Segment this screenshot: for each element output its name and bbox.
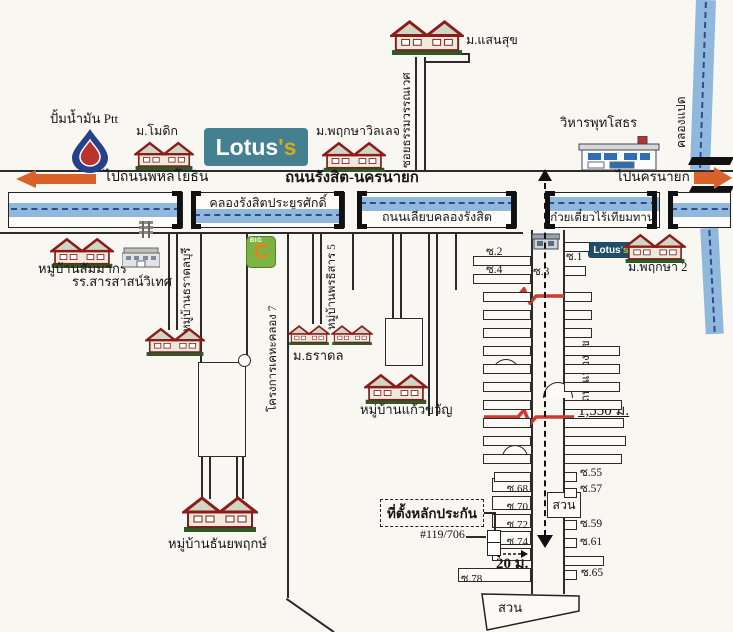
soi-65-label: ซ.65 [581, 567, 603, 580]
arrow-right-body [694, 172, 716, 184]
canal-water [9, 203, 182, 217]
soi-stub [483, 454, 531, 464]
soi-70-label: ซ.70 [505, 501, 530, 513]
soi-stub [564, 382, 620, 392]
bridge-bracket-icon [545, 191, 555, 229]
soi-68-label: ซ.68 [505, 483, 530, 495]
soi-stub [483, 328, 531, 338]
park-label: สวน [552, 495, 575, 515]
khlong8-label: คลองแปด [672, 96, 691, 148]
collateral-label: ที่ตั้งหลักประกัน [387, 502, 477, 524]
road-line [0, 232, 523, 234]
soi-stub [473, 256, 531, 266]
loop-road-outline [198, 362, 246, 457]
noodle-shop-icon [532, 230, 560, 250]
soi-stub [564, 310, 592, 320]
saensuk-house-icon [390, 18, 464, 57]
callout-line [466, 536, 486, 538]
road-line [400, 232, 402, 318]
canal-box: ถนนเลียบคลองรังสิต [357, 192, 517, 228]
width-20m-label: 20 ม. [496, 556, 528, 573]
lotus-word: Lotus [216, 134, 279, 161]
kaewkhwan-label: หมู่บ้านแก้วขวัญ [360, 403, 452, 418]
soi-59-label: ซ.59 [580, 518, 602, 531]
bridge-bracket-icon [172, 191, 182, 229]
road-line [242, 457, 244, 499]
soi-stub [564, 538, 577, 548]
bridge-bracket-icon [647, 191, 657, 229]
taradonburi-house-icon [145, 326, 205, 358]
canal-water [192, 209, 344, 223]
thanyapruek-label: หมู่บ้านธันยพฤกษ์ [168, 537, 267, 552]
soi-70-stub: ซ.70 [492, 496, 531, 510]
soi-stub [483, 292, 531, 302]
soi-stub [564, 364, 620, 374]
liap-khlong-road-label: ถนนเลียบคลองรังสิต [358, 207, 516, 227]
kaewkhwan-house-icon [364, 372, 428, 406]
arrow-left-icon [16, 170, 36, 188]
soi-72-stub: ซ.72 [492, 514, 531, 528]
taradon-house-icon [288, 324, 330, 346]
road-line [209, 457, 211, 499]
soi-1-label: ซ.1 [566, 251, 582, 264]
arrow-right-icon [714, 167, 732, 189]
lotus-apostrophe-s: 's [278, 134, 296, 161]
house-number-label: #119/706 [420, 528, 465, 542]
collateral-box: ที่ตั้งหลักประกัน [380, 499, 484, 527]
road-line [392, 232, 394, 318]
soi-stub [564, 454, 622, 464]
wihan-label: วิหารพุทโสธร [560, 116, 637, 131]
canal-box: ก๋วยเตี๋ยวไร้เทียมทาน [545, 192, 660, 228]
ptt-station-label: ปั้มน้ำมัน Ptt [50, 112, 118, 127]
pruksa2-label: ม.พฤกษา 2 [628, 260, 687, 274]
canal-box: คลองรังสิตประยูรศักดิ์ [191, 192, 345, 228]
soi-3-label: ซ.3 [533, 266, 549, 279]
soi-stub [494, 472, 531, 482]
soi-stub [564, 472, 577, 482]
keha-khlong7-label: โครงการเคหะคลอง 7 [264, 305, 282, 412]
soi-stub [564, 400, 622, 410]
phonthisan-label: หมู่บ้านพรธิสาร 5 [323, 244, 341, 330]
lotus-word: Lotus [593, 245, 620, 256]
road-line-diagonal [286, 598, 334, 632]
pruksa-village-house-icon [322, 140, 386, 174]
callout-line [494, 512, 496, 531]
soi-stub [473, 274, 531, 284]
road-line [428, 232, 430, 416]
big-c-letter: C [247, 241, 275, 264]
soi-74-label: ซ.74 [505, 536, 530, 548]
soi-stub [483, 400, 531, 410]
modik-label: ม.โมดิก [136, 124, 178, 138]
ptt-logo-icon [68, 128, 112, 174]
soi-stub [483, 418, 531, 428]
soi-wannawet-label: ซอยธรรมวรรณเวศ [398, 72, 416, 168]
soi-55-label: ซ.55 [580, 467, 602, 480]
big-c-logo: BIG C [246, 236, 276, 268]
saensuk-label: ม.แสนสุข [466, 33, 518, 47]
noodle-shop-label: ก๋วยเตี๋ยวไร้เทียมทาน [546, 209, 659, 227]
sarasas-school-label: รร.สารสาสน์วิเทศ [72, 275, 172, 290]
road-line [424, 57, 426, 170]
route-arrow-down-icon [537, 535, 553, 548]
soi-stub [564, 436, 626, 446]
khlong8-canal-lower [700, 228, 724, 335]
soi-57-label: ซ.57 [580, 483, 602, 496]
utility-pole-icon [138, 220, 154, 238]
soi-stub [564, 242, 590, 252]
road-line [201, 457, 203, 499]
pruksa-village-label: ม.พฤกษาวิลเลจ [316, 124, 400, 138]
soi-stub [564, 520, 577, 530]
soi-stub [564, 328, 592, 338]
road-line [320, 232, 322, 324]
modik-house-icon [134, 140, 194, 172]
bridge-bracket-icon [668, 191, 678, 229]
taradonburi-road-label: หมู่บ้านธราดลบุรี [178, 248, 196, 332]
bridge-bracket-icon [334, 191, 344, 229]
route-dashed-line [544, 183, 546, 536]
canal-water [669, 203, 730, 217]
bridge-mark [688, 157, 733, 165]
canal-box [8, 192, 183, 228]
soi-stub [564, 292, 592, 302]
thanyapruek-house-icon [182, 494, 258, 534]
park-label: สวน [498, 601, 522, 616]
lotus-logo-large: Lotus's [204, 128, 308, 166]
soi-stub [564, 266, 586, 276]
to-phahonyothin-label: ไปถนนพหลโยธิน [104, 170, 208, 186]
road-line [236, 457, 238, 499]
soi-stub [564, 418, 624, 428]
bridge-bracket-icon [191, 191, 201, 229]
soi-stub [483, 436, 531, 446]
park-area-shape [480, 592, 582, 632]
road-line [312, 232, 314, 324]
road-line [352, 232, 354, 290]
property-marker [487, 530, 501, 556]
soi-stub [483, 364, 531, 374]
soi-stub [564, 488, 577, 498]
block-outline [385, 318, 423, 366]
hand-drawn-location-map: ปั้มน้ำมัน Ptt ม.โมดิก Lotus's ม.พฤกษาวิ… [0, 0, 733, 632]
soi-stub [483, 346, 531, 356]
bridge-bracket-icon [506, 191, 516, 229]
soi-stub [564, 346, 620, 356]
school-building-icon [122, 246, 160, 268]
soi-72-label: ซ.72 [505, 519, 530, 531]
road-line [436, 232, 438, 416]
soi-stub [483, 382, 531, 392]
road-line [287, 232, 289, 598]
road-line [424, 61, 470, 63]
khlong8-canal-upper [690, 0, 716, 170]
property-marker-divider [488, 542, 500, 543]
arrow-left-body [36, 174, 96, 184]
roundabout-marker [238, 354, 251, 367]
soi-61-label: ซ.61 [580, 536, 602, 549]
to-nakhonnayok-label: ไปนครนายก [616, 169, 690, 185]
road-line [455, 232, 457, 290]
soi-stub [483, 310, 531, 320]
main-road-label: ถนนรังสิต-นครนายก [252, 170, 452, 187]
soi-78-label: ซ.78 [459, 573, 484, 585]
taradon-label: ม.ธราดล [293, 349, 343, 364]
soi-stub [564, 570, 577, 580]
bridge-bracket-icon [357, 191, 367, 229]
route-arrow-up-icon [538, 169, 552, 181]
taradon-house-icon [331, 324, 373, 346]
soi-stub [564, 556, 604, 566]
wihan-building-icon [576, 136, 662, 172]
